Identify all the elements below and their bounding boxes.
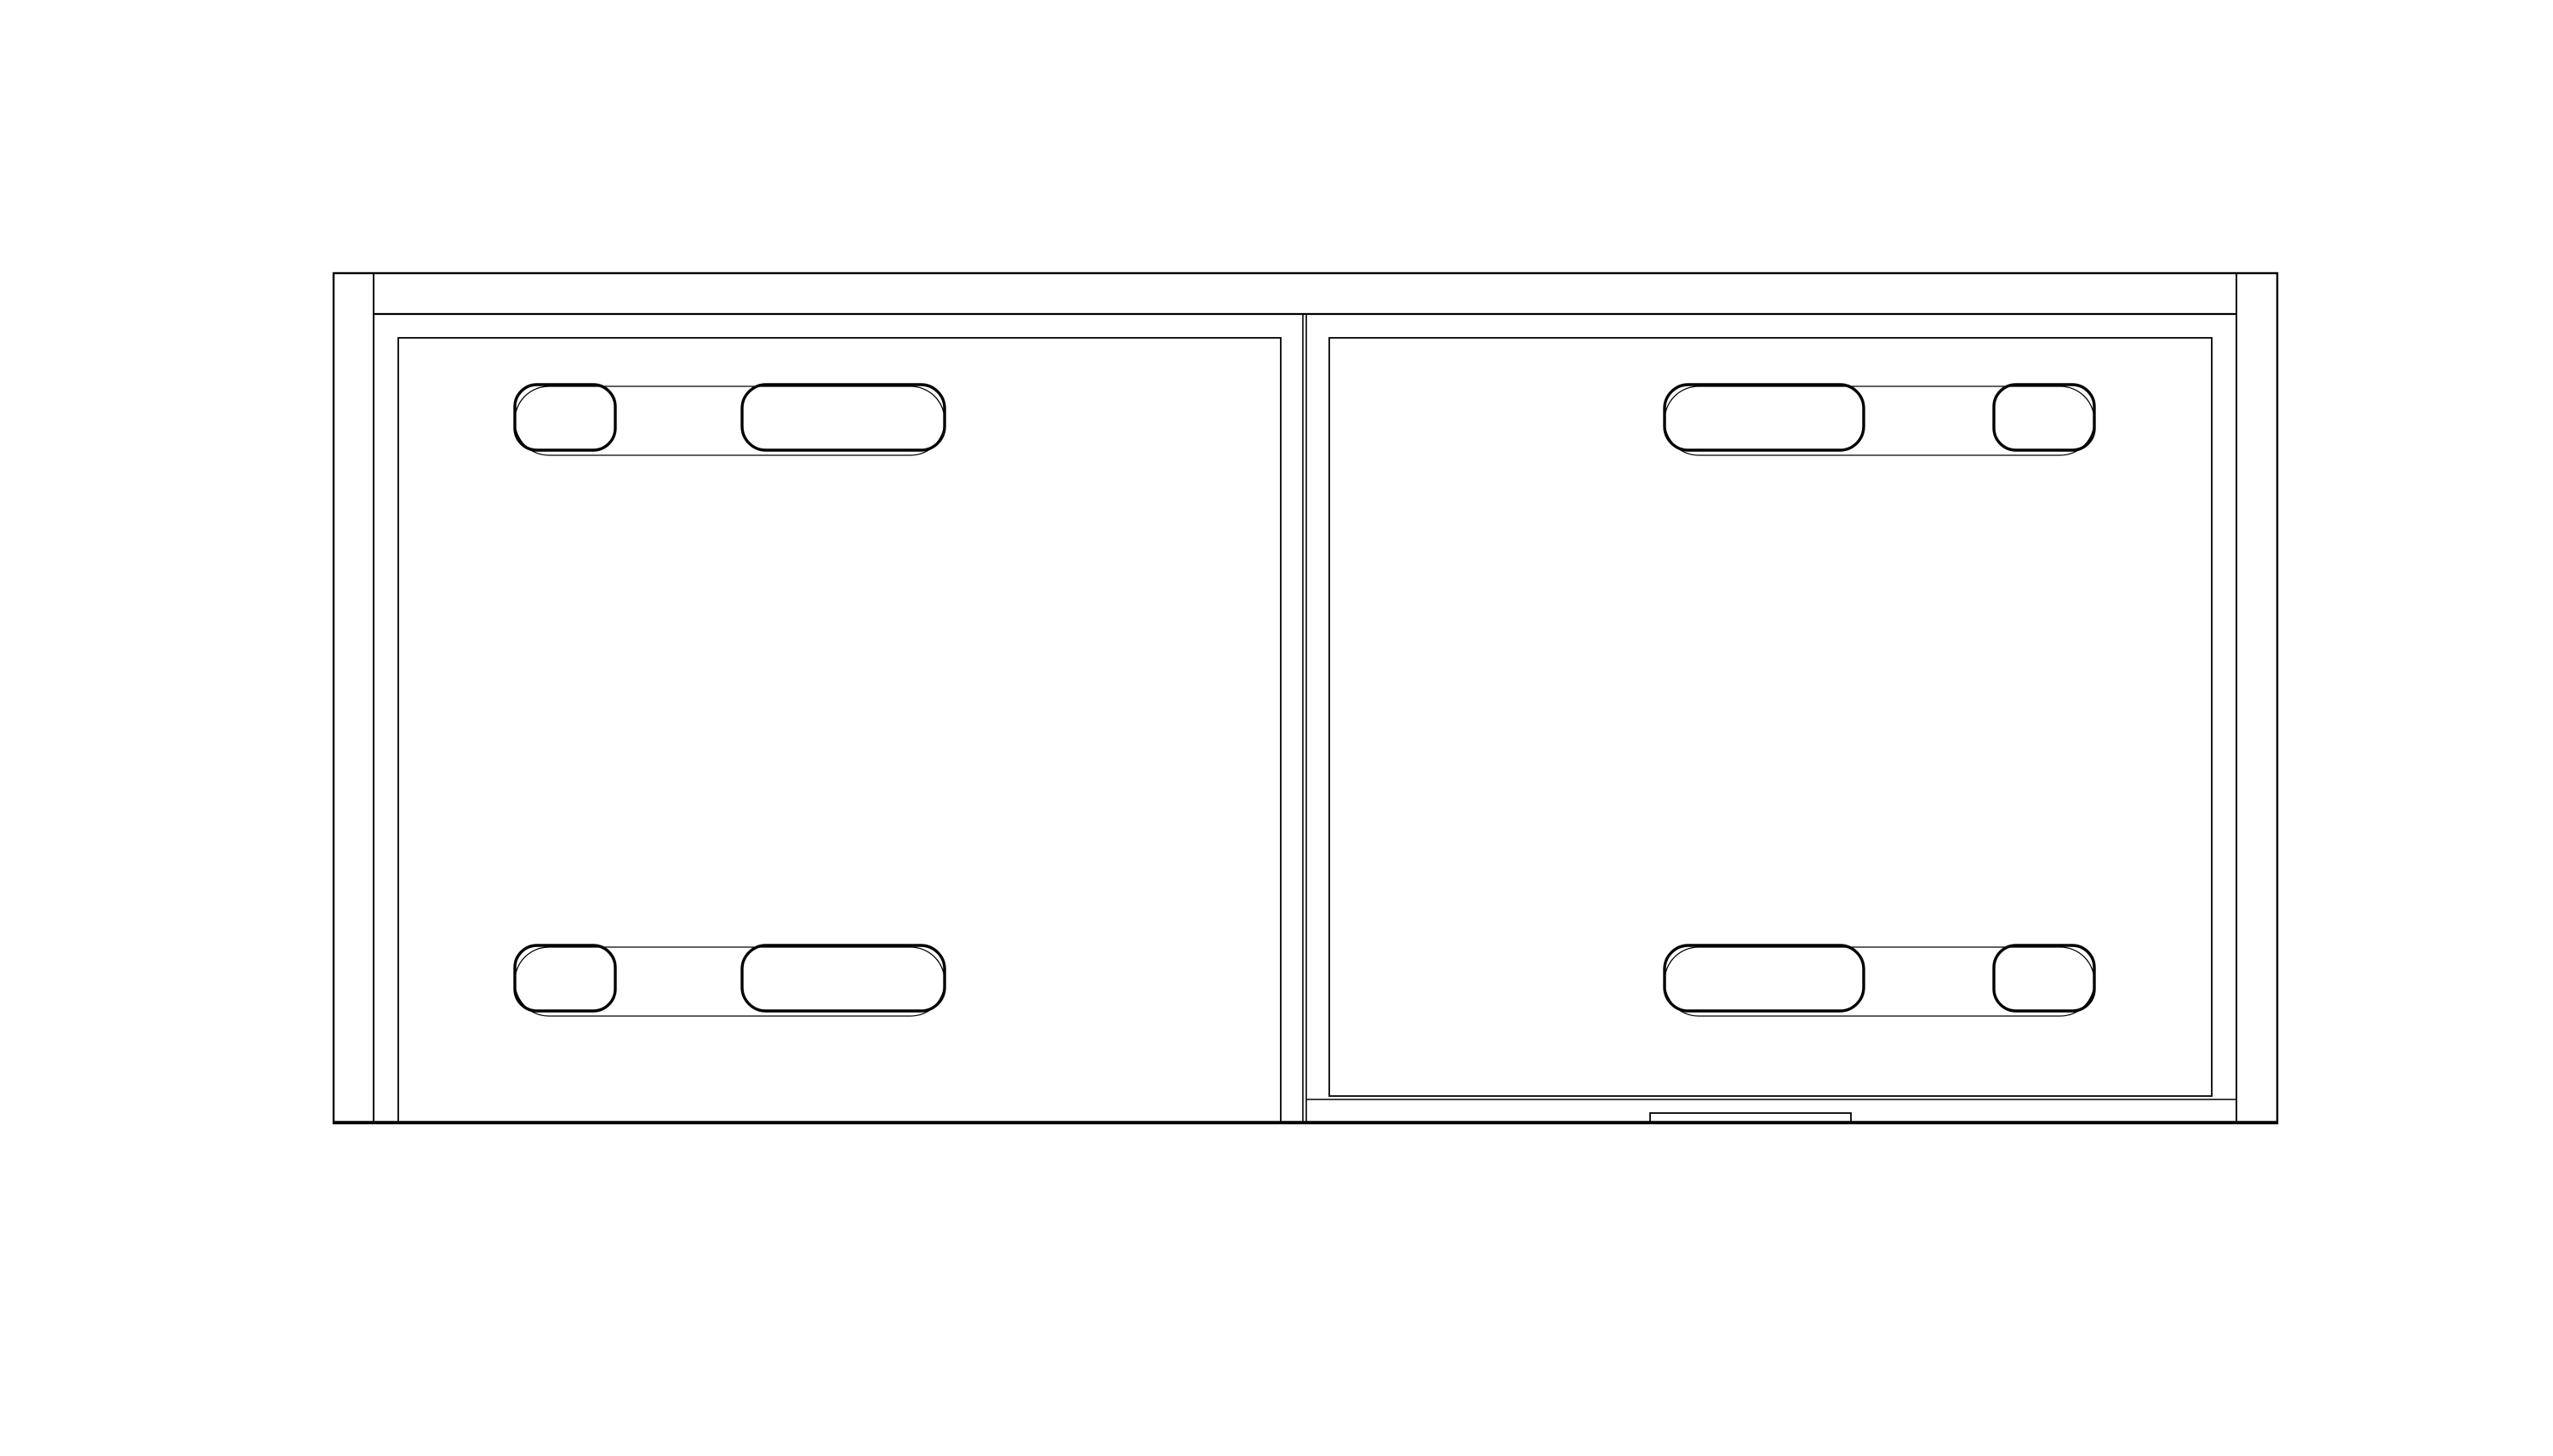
outer-frame — [334, 273, 2277, 1123]
right-door-top-slot-small-hole — [1994, 385, 2094, 450]
left-door-bottom-slot-small-hole — [515, 945, 615, 1011]
cad-drawing-canvas — [0, 0, 2553, 1456]
right-door-bottom-slot-stadium-outline — [1665, 947, 2094, 1016]
right-door-bottom-slot-small-hole — [1994, 945, 2094, 1011]
left-door-bottom-slot-stadium-outline — [515, 947, 945, 1016]
right-door-top-slot-stadium-outline — [1665, 386, 2094, 455]
left-door-top-slot-large-hole — [742, 385, 945, 450]
technical-drawing — [0, 0, 2553, 1456]
right-door-bottom-slot-large-hole — [1665, 945, 1864, 1011]
left-door-top-slot-stadium-outline — [515, 386, 945, 455]
right-door-top-slot-large-hole — [1665, 385, 1864, 450]
left-door-bottom-slot-large-hole — [742, 945, 945, 1011]
left-door-top-slot-small-hole — [515, 385, 615, 450]
